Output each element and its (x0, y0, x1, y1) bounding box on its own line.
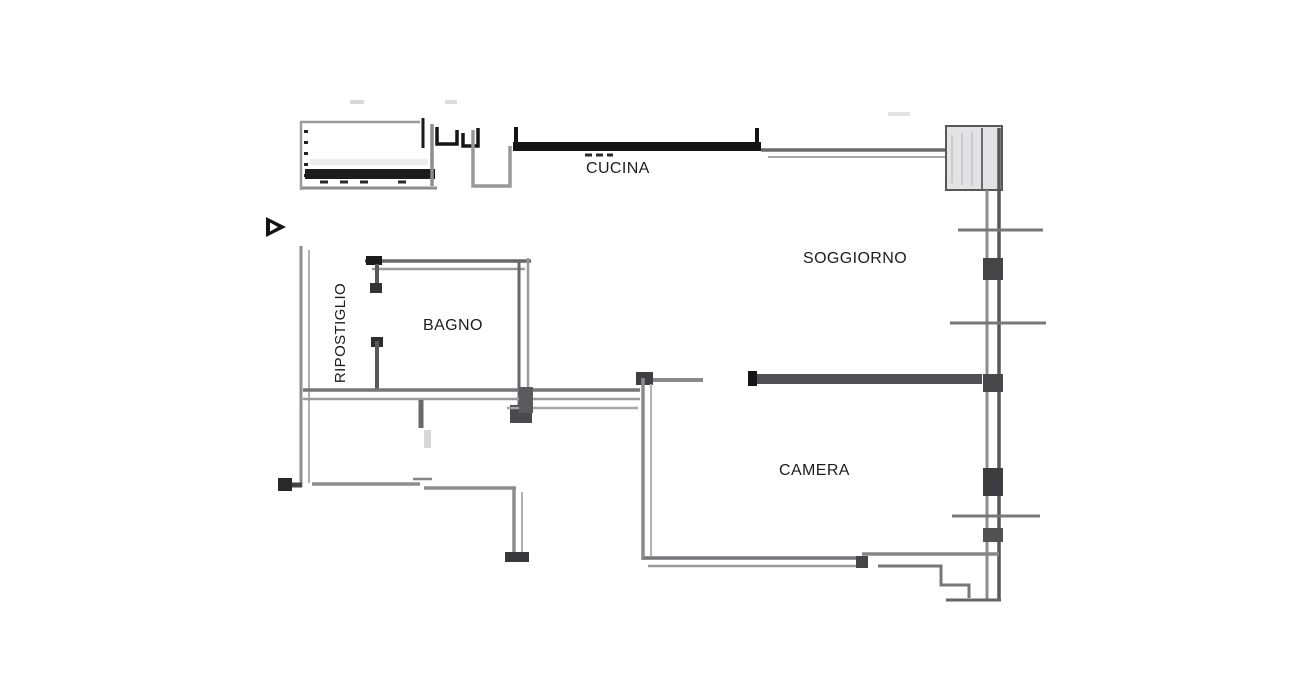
floor-plan-canvas: CUCINA SOGGIORNO BAGNO RIPOSTIGLIO CAMER… (0, 0, 1300, 698)
kitchen-window-wall (513, 127, 761, 155)
camera-bottom-wall (644, 554, 1001, 600)
room-label-bagno: BAGNO (423, 318, 483, 334)
corner-pillar-top-right (946, 126, 1002, 190)
floor-plan-drawing (0, 0, 1300, 698)
window-symbols-top (423, 118, 510, 186)
balcony-window-wall (305, 169, 435, 179)
camera-left-wall (643, 378, 651, 560)
camera-soggiorno-divider (636, 371, 982, 386)
room-label-camera: CAMERA (779, 463, 850, 479)
soggiorno-top-wall (761, 150, 948, 157)
room-label-soggiorno: SOGGIORNO (803, 251, 907, 267)
room-label-ripostiglio: RIPOSTIGLIO (333, 279, 359, 387)
corridor-walls (303, 387, 640, 562)
room-label-cucina: CUCINA (586, 161, 650, 177)
right-exterior-wall (950, 128, 1046, 600)
entry-arrow-icon (266, 217, 286, 237)
ripostiglio-left-wall (278, 246, 309, 491)
balcony-top-left (301, 122, 437, 190)
